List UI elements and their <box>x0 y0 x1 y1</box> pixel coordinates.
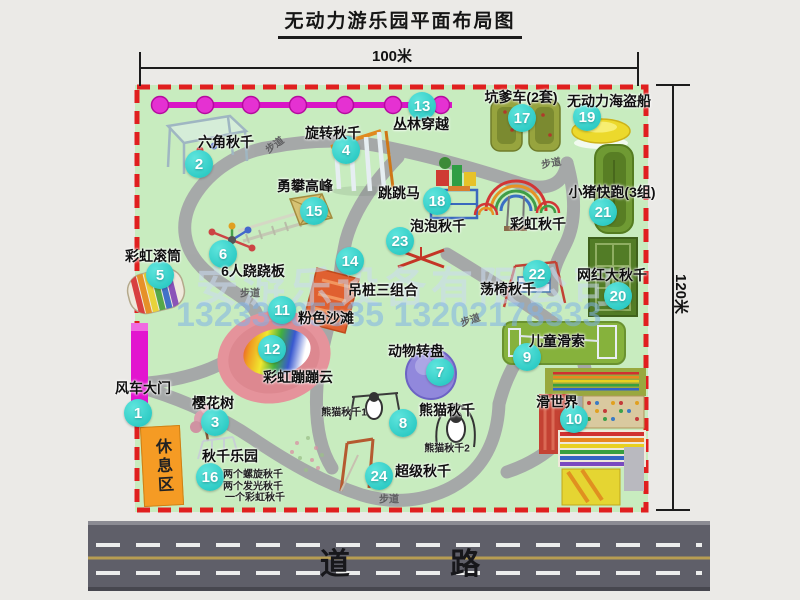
attraction-label-10: 滑世界 <box>536 392 578 412</box>
attraction-label-5: 彩虹滚筒 <box>125 246 181 266</box>
attraction-marker-21[interactable]: 21 <box>589 198 617 226</box>
attraction-label-14: 吊桩三组合 <box>348 280 418 300</box>
attraction-label-3: 樱花树 <box>192 393 234 413</box>
attraction-marker-20[interactable]: 20 <box>604 282 632 310</box>
attraction-marker-14[interactable]: 14 <box>336 247 364 275</box>
trail-label-1: 步道 <box>262 132 287 156</box>
road-label: 道 路 <box>270 539 530 583</box>
trail-label-2: 步道 <box>540 153 562 171</box>
attraction-marker-18[interactable]: 18 <box>423 187 451 215</box>
attraction-label-19: 无动力海盗船 <box>567 91 651 111</box>
attraction-label-22: 荡椅秋千 <box>480 279 536 299</box>
rest-area: 休息区 <box>140 425 184 507</box>
height-dimension-label: 120米 <box>671 274 692 314</box>
labels-layer: 无动力游乐园平面布局图 100米 120米 休息区 道 路 1风车大门2六角秋千… <box>0 0 800 600</box>
attraction-label-rainbow-swing: 彩虹秋千 <box>510 214 566 234</box>
attraction-marker-15[interactable]: 15 <box>300 197 328 225</box>
attraction-label-16: 秋千乐园 <box>202 446 258 466</box>
attraction-label-17: 坑爹车(2套) <box>484 87 557 107</box>
playground-map-screenshot: 安游乐设备有限公司 13233805535 13202178333 无动力游乐园… <box>0 0 800 600</box>
attraction-label-20: 网红大秋千 <box>577 265 647 285</box>
trail-label-5: 步道 <box>379 491 399 506</box>
attraction-label-4: 旋转秋千 <box>305 123 361 143</box>
width-dimension-label: 100米 <box>352 45 432 66</box>
attraction-marker-2[interactable]: 2 <box>185 150 213 178</box>
trail-label-3: 步道 <box>240 285 260 300</box>
attraction-sublabel-8-2: 熊猫秋千2 <box>424 440 470 455</box>
attraction-marker-7[interactable]: 7 <box>426 358 454 386</box>
attraction-label-12: 彩虹蹦蹦云 <box>263 367 333 387</box>
attraction-label-13: 丛林穿越 <box>393 114 449 134</box>
attraction-marker-12[interactable]: 12 <box>258 335 286 363</box>
attraction-label-15: 勇攀高峰 <box>277 176 333 196</box>
attraction-sublabel-8-1: 熊猫秋千1 <box>321 404 367 419</box>
attraction-sublabel-16-3: 一个彩虹秋千 <box>225 489 285 504</box>
attraction-marker-11[interactable]: 11 <box>268 296 296 324</box>
attraction-label-1: 风车大门 <box>115 378 171 398</box>
attraction-label-7: 动物转盘 <box>388 341 444 361</box>
attraction-marker-17[interactable]: 17 <box>508 104 536 132</box>
attraction-label-2: 六角秋千 <box>198 132 254 152</box>
attraction-label-11: 粉色沙滩 <box>298 308 354 328</box>
attraction-marker-8[interactable]: 8 <box>389 409 417 437</box>
attraction-label-18: 跳跳马 <box>378 183 420 203</box>
trail-label-4: 步道 <box>458 309 482 329</box>
attraction-label-24: 超级秋千 <box>395 461 451 481</box>
attraction-label-8: 熊猫秋千 <box>419 400 475 420</box>
attraction-marker-1[interactable]: 1 <box>124 399 152 427</box>
page-title: 无动力游乐园平面布局图 <box>0 6 800 39</box>
attraction-label-9: 儿童滑索 <box>529 331 585 351</box>
attraction-marker-24[interactable]: 24 <box>365 462 393 490</box>
attraction-label-21: 小猪快跑(3组) <box>568 182 655 202</box>
attraction-marker-16[interactable]: 16 <box>196 463 224 491</box>
attraction-label-23: 泡泡秋千 <box>410 216 466 236</box>
attraction-label-6: 6人跷跷板 <box>221 261 285 281</box>
